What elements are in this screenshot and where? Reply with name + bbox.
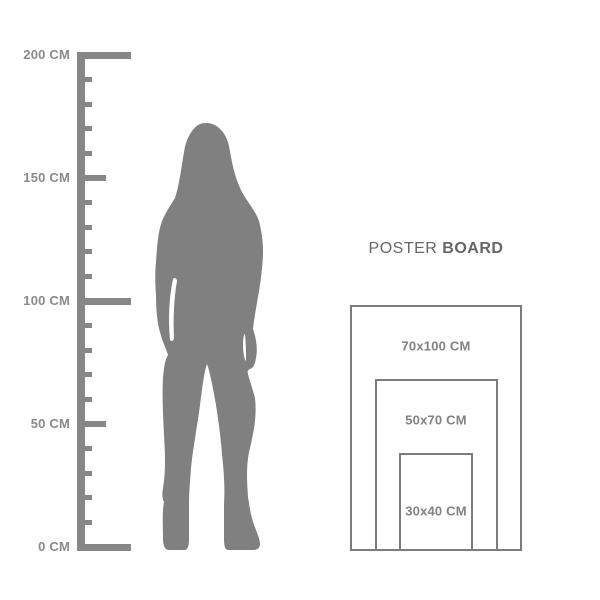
size-comparison-diagram: 200 CM150 CM100 CM50 CM0 CM POSTER BOARD…: [0, 0, 600, 600]
poster-size-label: 50x70 CM: [405, 412, 467, 427]
poster-size-rect-30x40: [399, 453, 473, 551]
poster-board-title: POSTER BOARD: [350, 240, 522, 258]
poster-board-title-regular: POSTER: [369, 240, 438, 257]
poster-size-label: 30x40 CM: [405, 503, 467, 518]
poster-size-label: 70x100 CM: [401, 338, 470, 353]
poster-board-title-bold: BOARD: [442, 240, 503, 257]
